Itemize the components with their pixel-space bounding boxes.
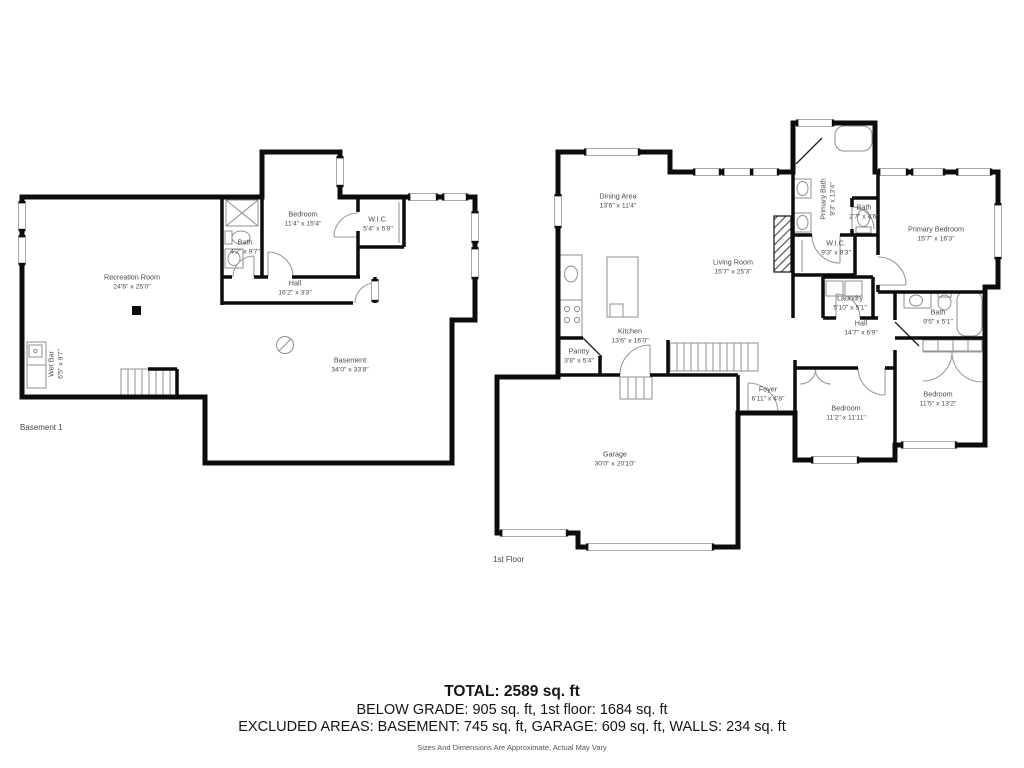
room-label-wet-bar: Wet Bar 6'5" x 9'7" bbox=[47, 349, 66, 379]
total-area-text: TOTAL: 2589 sq. ft bbox=[0, 683, 1024, 701]
room-label-kitchen: Kitchen 13'6" x 16'0" bbox=[611, 327, 648, 346]
room-label-recreation-room: Recreation Room 24'6" x 25'0" bbox=[104, 273, 160, 292]
bathtub bbox=[835, 126, 872, 151]
room-label-dining-area: Dining Area 13'6" x 11'4" bbox=[599, 192, 636, 211]
room-label-basement-hall: Hall 16'2" x 3'3" bbox=[278, 279, 312, 298]
toilet bbox=[856, 227, 871, 233]
kitchen-sink bbox=[565, 266, 578, 282]
room-label-garage: Garage 30'0" x 20'10" bbox=[594, 450, 635, 469]
room-label-basement-bedroom: Bedroom 11'4" x 15'4" bbox=[285, 210, 322, 229]
room-label-basement-open: Basement 34'0" x 33'8" bbox=[331, 356, 368, 375]
room-label-pantry: Pantry 3'8" x 5'4" bbox=[564, 347, 594, 366]
summary-footer: TOTAL: 2589 sq. ft BELOW GRADE: 905 sq. … bbox=[0, 683, 1024, 752]
floorplan-image: Recreation Room 24'6" x 25'0" Bedroom 11… bbox=[0, 0, 1024, 768]
room-label-primary-bath: Primary Bath 9'3" x 13'4" bbox=[819, 178, 838, 220]
basement-walls bbox=[22, 152, 475, 463]
excluded-areas-text: EXCLUDED AREAS: BASEMENT: 745 sq. ft, GA… bbox=[0, 719, 1024, 735]
fireplace-hatch bbox=[774, 216, 791, 272]
bathtub bbox=[957, 291, 982, 336]
room-label-basement-wic: W.I.C. 5'4" x 5'8" bbox=[363, 215, 393, 234]
room-label-second-bath: Bath 9'5" x 5'1" bbox=[923, 308, 953, 327]
kitchen-counter bbox=[560, 255, 582, 338]
room-label-foyer: Foyer 6'11" x 4'8" bbox=[752, 385, 785, 404]
first-floor-plan bbox=[497, 120, 1002, 551]
first-floor-walls bbox=[497, 123, 998, 547]
below-grade-text: BELOW GRADE: 905 sq. ft, 1st floor: 1684… bbox=[0, 702, 1024, 718]
first-floor-fixtures bbox=[560, 126, 982, 399]
stairs-to-basement bbox=[670, 343, 758, 371]
room-label-laundry: Laundry 5'10" x 5'1" bbox=[833, 294, 867, 313]
room-label-primary-bedroom: Primary Bedroom 15'7" x 16'3" bbox=[908, 225, 964, 244]
floor-caption-first: 1st Floor bbox=[493, 555, 524, 564]
basement-windows bbox=[19, 156, 479, 302]
floorplan-drawing bbox=[0, 0, 1024, 768]
room-label-bedroom-right: Bedroom 11'5" x 13'2" bbox=[920, 390, 957, 409]
disclaimer-text: Sizes And Dimensions Are Approximate, Ac… bbox=[0, 743, 1024, 752]
room-label-living-room: Living Room 15'7" x 25'3" bbox=[713, 258, 753, 277]
support-post bbox=[132, 306, 141, 315]
room-label-first-hall: Hall 14'7" x 6'9" bbox=[844, 319, 878, 338]
room-label-small-bath: Bath 2'7" x 4'6" bbox=[849, 203, 879, 222]
floor-caption-basement: Basement 1 bbox=[20, 423, 63, 432]
first-floor-windows bbox=[500, 120, 1002, 551]
room-label-bedroom-left: Bedroom 11'2" x 11'11" bbox=[826, 404, 866, 423]
basement-plan bbox=[19, 152, 479, 463]
room-label-basement-bath: Bath 4'2" x 9'7" bbox=[230, 238, 260, 257]
garage-door bbox=[620, 345, 650, 375]
room-label-first-wic: W.I.C. 9'3" x 8'3" bbox=[821, 239, 851, 258]
